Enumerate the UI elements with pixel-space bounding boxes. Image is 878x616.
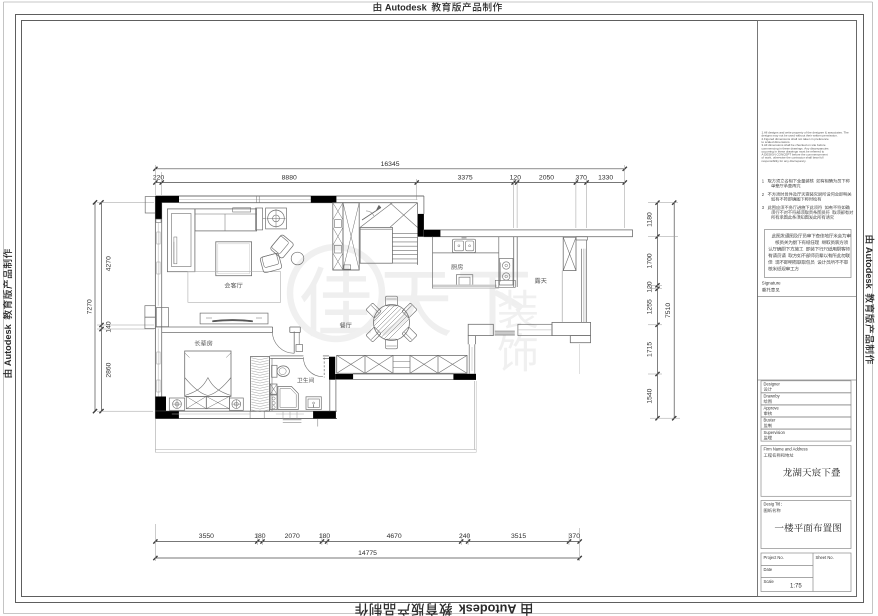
svg-text:4270: 4270 [106,256,113,271]
svg-text:2860: 2860 [106,362,113,377]
svg-text:1330: 1330 [598,174,613,181]
svg-text:Firm Name and Address: Firm Name and Address [764,446,808,451]
svg-text:Supervision: Supervision [764,430,786,435]
svg-text:8880: 8880 [282,174,297,181]
svg-text:Autodesk: Autodesk [3,323,13,366]
svg-text:180: 180 [319,533,331,540]
svg-text:Buster: Buster [764,418,776,423]
svg-text:Sheet No.: Sheet No. [816,555,834,560]
svg-text:1540: 1540 [647,388,654,403]
svg-text:Designer: Designer [764,381,781,386]
svg-text:responsibility for any discrep: responsibility for any discrepancy. [762,159,807,163]
svg-text:3375: 3375 [458,174,473,181]
svg-text:Autodesk: Autodesk [385,3,428,13]
svg-text:120: 120 [647,281,654,293]
svg-text:Signature: Signature [762,281,781,286]
svg-text:240: 240 [459,533,471,540]
svg-text:7510: 7510 [665,303,672,318]
svg-text:Autodesk: Autodesk [864,247,874,290]
svg-text:3550: 3550 [199,533,214,540]
svg-text:16345: 16345 [381,161,400,168]
svg-text:Autodesk: Autodesk [458,602,517,616]
svg-text:1180: 1180 [647,212,654,227]
svg-text:Scale: Scale [764,579,775,584]
svg-text:1715: 1715 [647,342,654,357]
svg-text:140: 140 [106,321,113,333]
svg-text:Approve: Approve [764,406,780,411]
svg-text:Date: Date [764,567,773,572]
svg-text:2050: 2050 [539,174,554,181]
svg-text:180: 180 [254,533,266,540]
svg-text:4670: 4670 [387,533,402,540]
svg-text:2070: 2070 [285,533,300,540]
svg-text:14775: 14775 [358,550,377,557]
svg-text:220: 220 [153,174,165,181]
svg-text:1255: 1255 [647,299,654,314]
svg-text:3515: 3515 [511,533,526,540]
svg-text:370: 370 [576,174,588,181]
svg-text:370: 370 [569,533,581,540]
svg-text:1:75: 1:75 [790,584,802,590]
svg-text:Desig Titl：: Desig Titl： [764,501,785,506]
svg-text:Project No.: Project No. [764,555,784,560]
svg-text:7270: 7270 [87,299,94,314]
svg-text:Drawnby: Drawnby [764,394,781,399]
svg-text:120: 120 [510,174,522,181]
svg-text:1700: 1700 [647,253,654,268]
